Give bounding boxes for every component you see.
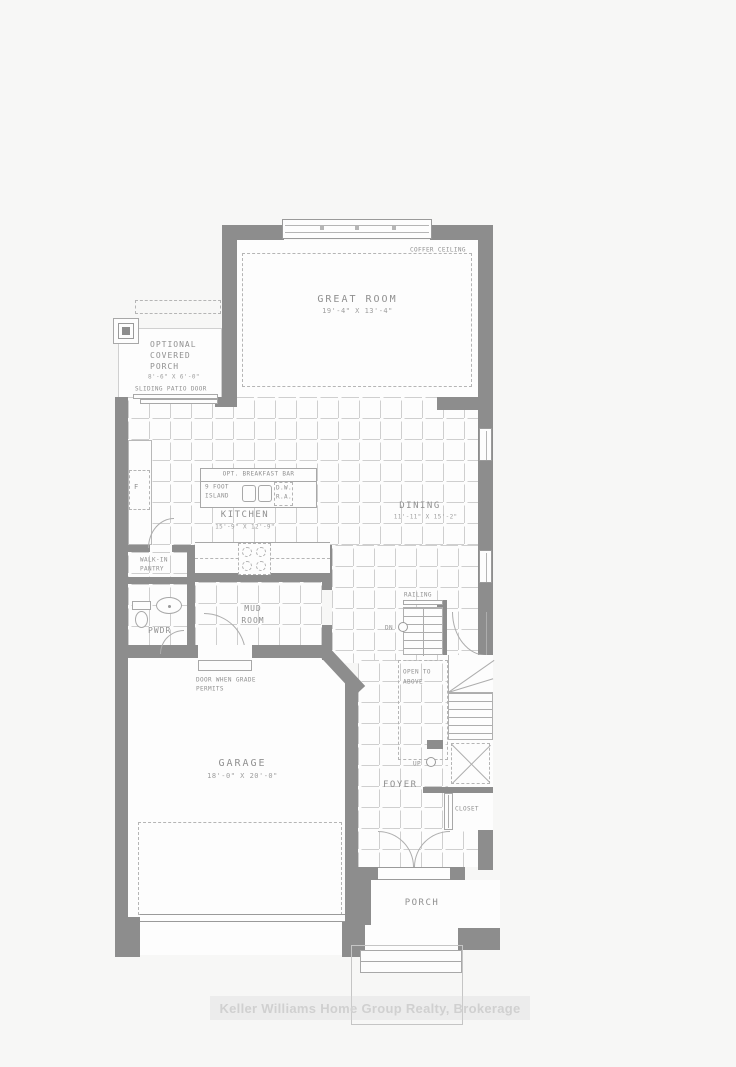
- grade-door-threshold: [198, 660, 252, 671]
- railing-label: RAILING: [404, 591, 432, 598]
- range-burner: [256, 561, 266, 571]
- pantry-label-1: WALK-IN: [140, 556, 168, 563]
- stair-center-line: [423, 608, 424, 656]
- great-room-dims: 19'-4" X 13'-4": [237, 307, 478, 315]
- rough-in-label: R.A.: [276, 493, 292, 500]
- stair-railing-bar: [403, 600, 443, 605]
- floor-plan: COFFER CEILING GREAT ROOM 19'-4" X 13'-4…: [0, 0, 736, 1067]
- porch-column-core: [122, 327, 130, 335]
- range-burner: [242, 547, 252, 557]
- optional-porch-dims: 8'-6" X 6'-0": [148, 373, 200, 380]
- grade-door-label-2: PERMITS: [196, 685, 224, 692]
- closet-door: [444, 793, 453, 830]
- island-sink-bowl: [242, 485, 256, 502]
- down-marker-circle: [398, 622, 408, 632]
- powder-sink: [156, 597, 182, 614]
- porch-roof-outline: [135, 300, 221, 314]
- porch-column: [113, 318, 139, 344]
- sliding-patio-door-label: SLIDING PATIO DOOR: [135, 385, 207, 392]
- garage-label: GARAGE: [140, 758, 345, 769]
- stair-door-leaf: [486, 612, 487, 656]
- wall-pantry-bottom: [128, 577, 187, 584]
- dishwasher-label: D.W.: [276, 484, 292, 491]
- island-sink-bowl: [258, 485, 272, 502]
- down-label: DN: [385, 624, 393, 631]
- open-above-label-2: ABOVE: [403, 678, 423, 685]
- powder-room-label: PWDR: [148, 626, 171, 635]
- watermark-text: Keller Williams Home Group Realty, Broke…: [219, 1001, 520, 1016]
- window-tick: [392, 226, 396, 230]
- optional-porch-label-2: COVERED: [150, 351, 191, 360]
- wall-left-exterior-upper: [115, 397, 128, 647]
- up-marker-circle: [426, 757, 436, 767]
- kitchen-dims: 15'-9" X 12'-9": [215, 523, 275, 530]
- fridge-outline: [129, 470, 150, 510]
- front-door-threshold: [378, 867, 450, 880]
- dining-window: [479, 428, 492, 461]
- up-label: UP: [413, 760, 421, 767]
- wall-garage-left: [115, 658, 128, 950]
- toilet-bowl: [135, 611, 148, 628]
- wall-stub-great-room-dining: [437, 397, 478, 410]
- garage-dims: 18'-0" X 20'-0": [140, 772, 345, 780]
- foyer-label: FOYER: [383, 780, 418, 790]
- sliding-patio-door-panel: [140, 399, 218, 404]
- window-mullion-line: [285, 232, 429, 233]
- wall-front-left: [358, 867, 378, 880]
- window-glass-line: [486, 553, 487, 582]
- porch-step: [360, 961, 462, 973]
- grade-door-opening: [198, 645, 252, 658]
- coffer-ceiling-outline: [242, 253, 472, 387]
- wall-garage-top-a: [115, 645, 198, 658]
- wall-porch-left: [358, 880, 371, 925]
- wall-garage-right: [345, 683, 358, 917]
- dining-window: [479, 550, 492, 583]
- wall-front-right: [450, 867, 465, 880]
- watermark-band: Keller Williams Home Group Realty, Broke…: [210, 996, 530, 1020]
- optional-porch-label-3: PORCH: [150, 362, 179, 371]
- wall-great-room-left: [222, 225, 237, 407]
- mud-room-label-1: MUD: [224, 604, 282, 613]
- sink-drain: [168, 605, 171, 608]
- great-room-label: GREAT ROOM: [237, 294, 478, 305]
- closet-label: CLOSET: [455, 805, 479, 812]
- fridge-label: F: [134, 483, 139, 491]
- pantry-label-2: PANTRY: [140, 565, 164, 572]
- porch-label: PORCH: [372, 898, 472, 908]
- island-label-1: 9 FOOT: [205, 483, 229, 490]
- open-to-above-outline: [398, 660, 448, 760]
- wall-pantry-right: [187, 545, 195, 655]
- garage-door: [140, 914, 345, 922]
- garage-ceiling-outline: [138, 822, 342, 915]
- wall-garage-pillar-left: [115, 917, 140, 957]
- open-above-label-1: OPEN TO: [403, 668, 431, 675]
- optional-porch-label-1: OPTIONAL: [150, 340, 197, 349]
- basement-stair-flight: [403, 607, 443, 655]
- garage-apron: [140, 922, 342, 955]
- range-burner: [242, 561, 252, 571]
- window-tick: [355, 226, 359, 230]
- toilet-tank: [132, 601, 151, 610]
- upper-stair-flight: [448, 692, 493, 740]
- window-glass-line: [486, 431, 487, 460]
- breakfast-bar-label: OPT. BREAKFAST BAR: [215, 470, 303, 477]
- grade-door-label-1: DOOR WHEN GRADE: [196, 676, 256, 683]
- range-burner: [256, 547, 266, 557]
- coffer-ceiling-label: COFFER CEILING: [410, 246, 466, 253]
- dining-dims: 11'-11" X 15'-2": [394, 513, 447, 520]
- wall-porch-corner-block: [458, 928, 500, 950]
- window-tick: [320, 226, 324, 230]
- dining-label: DINING: [385, 501, 455, 511]
- island-label-2: ISLAND: [205, 492, 229, 499]
- wall-pantry-top-b: [172, 545, 187, 552]
- closet-door-line: [448, 795, 449, 828]
- kitchen-label: KITCHEN: [205, 510, 285, 520]
- wall-pantry-top-a: [128, 545, 150, 552]
